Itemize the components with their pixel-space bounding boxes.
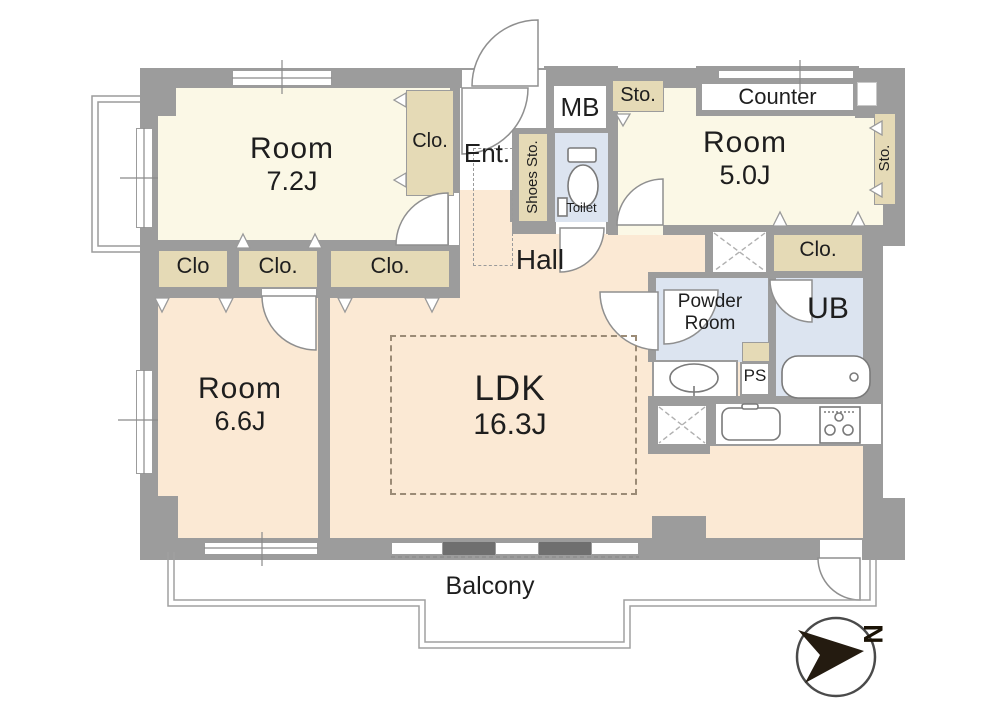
left-bay-outline <box>92 96 142 252</box>
folding-door-mark <box>394 93 406 107</box>
kitchen-sink-icon <box>722 408 780 440</box>
folding-door-mark <box>308 234 322 248</box>
room-5-0-label: Room 5.0J <box>660 126 830 191</box>
room-6-6-label: Room 6.6J <box>160 372 320 437</box>
room-6-6-name: Room <box>160 372 320 406</box>
front-door-arc <box>472 20 538 86</box>
folding-door-mark <box>851 212 865 226</box>
closet-3-label: Clo. <box>330 253 450 279</box>
toilet-label: Toilet <box>555 200 608 215</box>
room-5-0-door-arc <box>617 179 663 225</box>
storage-top-label: Sto. <box>612 84 664 107</box>
room-5-0-name: Room <box>660 126 830 160</box>
room-6-6-size: 6.6J <box>160 406 320 437</box>
room-7-2-label: Room 7.2J <box>212 132 372 197</box>
folding-door-mark <box>394 173 406 187</box>
room-5-0-size: 5.0J <box>660 160 830 191</box>
room-7-2-door-arc <box>396 193 448 245</box>
stove-burner-icon <box>835 413 843 421</box>
floor-plan: N Room 7.2J Room 5.0J Room 6.6J LDK 16.3… <box>0 0 1000 707</box>
folding-door-mark <box>155 298 169 312</box>
closet-1-label: Clo <box>158 253 228 279</box>
folding-door-mark <box>338 298 352 312</box>
room-6-6-door-arc <box>262 296 316 350</box>
pipe-space-label: PS <box>740 366 770 386</box>
closet-right-label: Clo. <box>773 238 863 262</box>
balcony-door-arc <box>818 558 860 600</box>
folding-door-mark <box>616 114 630 126</box>
closet-room72-label: Clo. <box>402 130 458 153</box>
ldk-label: LDK 16.3J <box>430 370 590 442</box>
kitchen-faucet-icon <box>742 404 758 409</box>
ldk-name: LDK <box>430 370 590 408</box>
entrance-label: Ent. <box>452 138 522 169</box>
meter-box-label: MB <box>552 92 608 123</box>
ldk-size: 16.3J <box>430 408 590 442</box>
counter-label: Counter <box>700 84 855 110</box>
toilet-tank-icon <box>568 148 596 162</box>
compass: N <box>797 618 888 696</box>
folding-door-mark <box>219 298 233 312</box>
folding-door-mark <box>236 234 250 248</box>
closet-2-label: Clo. <box>238 253 318 279</box>
shoes-storage-label: Shoes Sto. <box>523 127 543 227</box>
folding-door-mark <box>425 298 439 312</box>
hall-label: Hall <box>500 244 580 276</box>
stove-burner-icon <box>825 425 835 435</box>
stove-burner-icon <box>843 425 853 435</box>
compass-north-label: N <box>858 624 888 644</box>
powder-room-label: Powder Room <box>660 291 760 335</box>
storage-right-label: Sto. <box>875 128 895 188</box>
room-7-2-size: 7.2J <box>212 166 372 197</box>
folding-door-mark <box>773 212 787 226</box>
bathtub-drain-icon <box>850 373 858 381</box>
room-7-2-name: Room <box>212 132 372 166</box>
balcony-label: Balcony <box>410 572 570 601</box>
unit-bath-label: UB <box>798 292 858 326</box>
left-bay-outline <box>98 102 142 246</box>
